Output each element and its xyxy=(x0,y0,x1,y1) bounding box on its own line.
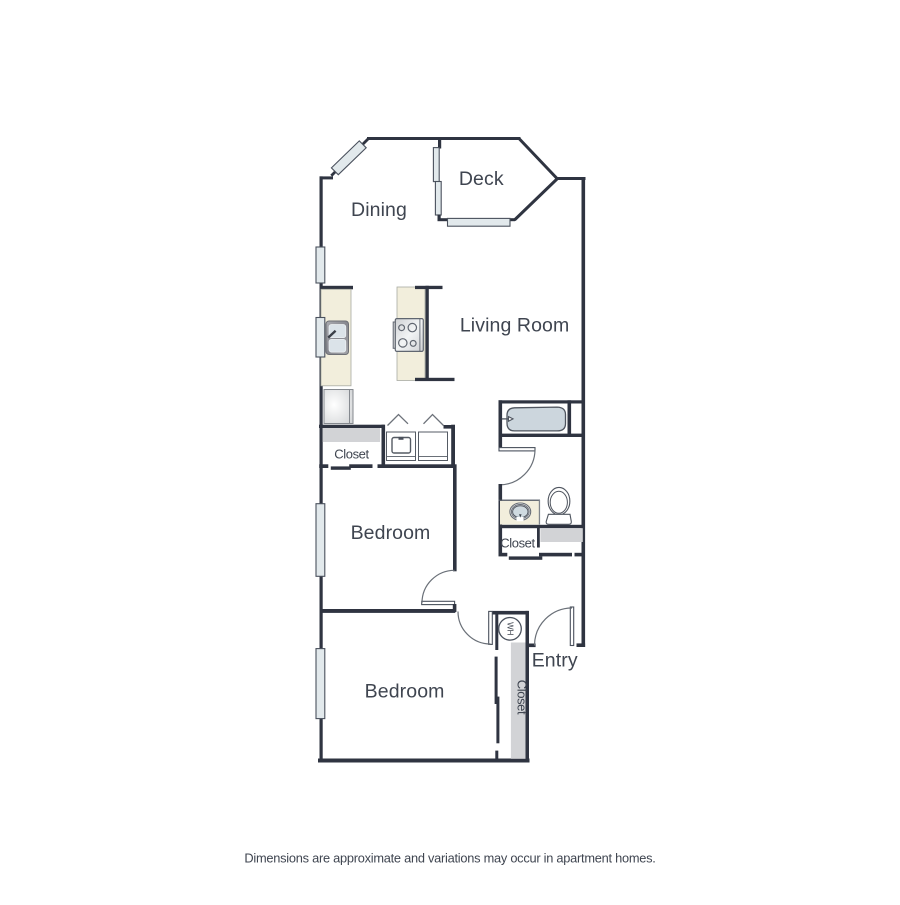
svg-text:Deck: Deck xyxy=(459,168,504,190)
svg-text:Entry: Entry xyxy=(532,649,578,671)
svg-text:Closet: Closet xyxy=(334,447,369,462)
svg-text:Dining: Dining xyxy=(351,199,407,221)
svg-text:Bedroom: Bedroom xyxy=(365,680,445,702)
svg-text:Closet: Closet xyxy=(500,536,535,551)
svg-text:Dimensions are approximate and: Dimensions are approximate and variation… xyxy=(244,851,655,866)
svg-text:Living Room: Living Room xyxy=(460,315,569,337)
svg-text:Bedroom: Bedroom xyxy=(351,522,431,544)
svg-text:WH: WH xyxy=(506,622,515,636)
svg-text:Closet: Closet xyxy=(515,680,530,715)
